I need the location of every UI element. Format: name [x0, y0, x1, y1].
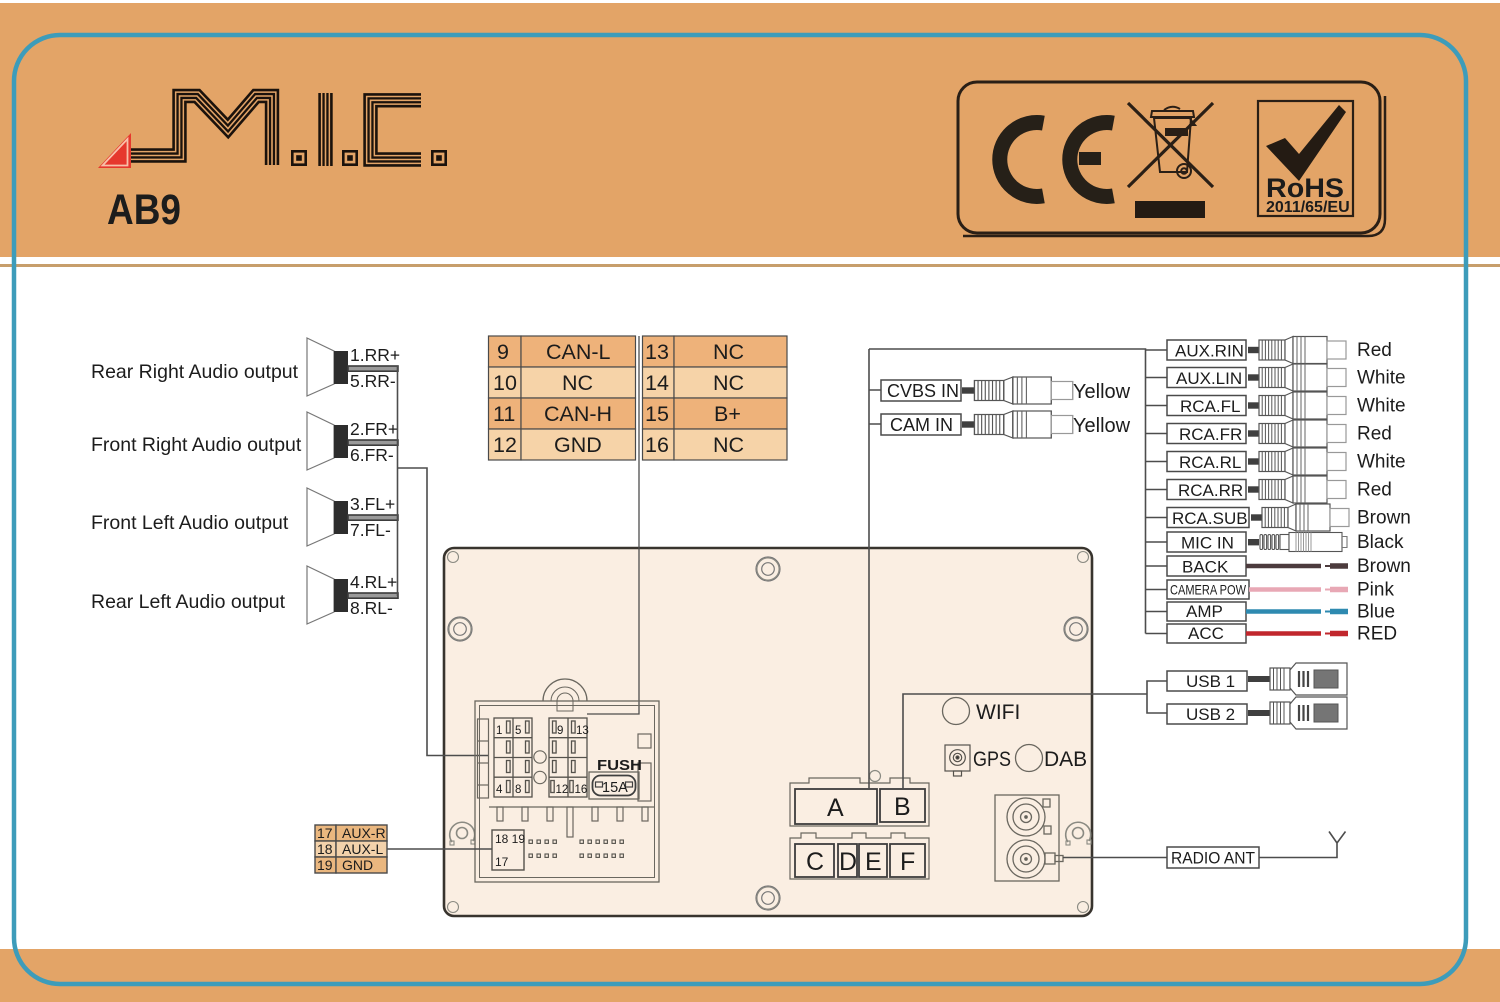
svg-text:8.RL-: 8.RL-: [350, 598, 393, 618]
svg-text:Rear Right Audio output: Rear Right Audio output: [91, 361, 299, 383]
svg-text:Yellow: Yellow: [1073, 381, 1131, 403]
svg-text:B+: B+: [714, 402, 741, 426]
svg-text:1: 1: [496, 725, 502, 737]
svg-text:15A: 15A: [602, 780, 628, 796]
svg-text:CAMERA POW: CAMERA POW: [1170, 582, 1247, 598]
svg-text:10: 10: [493, 371, 517, 395]
svg-text:NC: NC: [713, 340, 744, 364]
svg-text:16: 16: [575, 784, 588, 796]
svg-text:AMP: AMP: [1186, 602, 1223, 621]
svg-text:AB9: AB9: [107, 186, 181, 234]
svg-text:17: 17: [317, 825, 333, 841]
svg-text:Pink: Pink: [1357, 580, 1394, 601]
svg-text:WIFI: WIFI: [976, 701, 1020, 724]
svg-text:Rear Left Audio output: Rear Left Audio output: [91, 591, 286, 613]
svg-text:MIC IN: MIC IN: [1181, 534, 1234, 553]
svg-text:Brown: Brown: [1357, 556, 1411, 577]
svg-text:RCA.FL: RCA.FL: [1180, 397, 1240, 416]
svg-text:RADIO ANT: RADIO ANT: [1171, 849, 1255, 868]
svg-text:Brown: Brown: [1357, 508, 1411, 529]
svg-text:BACK: BACK: [1182, 558, 1229, 577]
svg-text:F: F: [900, 848, 915, 876]
svg-text:AUX.LIN: AUX.LIN: [1176, 369, 1242, 388]
svg-text:Red: Red: [1357, 340, 1392, 361]
svg-text:Yellow: Yellow: [1073, 415, 1131, 437]
svg-text:GND: GND: [342, 857, 373, 873]
svg-text:Front Right Audio output: Front Right Audio output: [91, 434, 302, 456]
svg-text:4: 4: [496, 784, 503, 796]
svg-text:AUX-R: AUX-R: [342, 825, 386, 841]
svg-text:C: C: [806, 848, 824, 876]
svg-text:18 19: 18 19: [495, 832, 525, 846]
svg-text:Red: Red: [1357, 480, 1392, 501]
svg-text:NC: NC: [713, 433, 744, 457]
svg-text:18: 18: [317, 841, 333, 857]
svg-text:5.RR-: 5.RR-: [350, 371, 396, 391]
svg-text:White: White: [1357, 368, 1406, 389]
svg-text:USB 2: USB 2: [1186, 705, 1235, 724]
svg-text:AUX.RIN: AUX.RIN: [1175, 342, 1244, 361]
svg-text:RCA.RL: RCA.RL: [1179, 453, 1241, 472]
svg-text:14: 14: [645, 371, 669, 395]
svg-text:Blue: Blue: [1357, 602, 1395, 623]
svg-text:AUX-L: AUX-L: [342, 841, 383, 857]
svg-text:CVBS IN: CVBS IN: [887, 381, 959, 401]
svg-text:3.FL+: 3.FL+: [350, 494, 395, 514]
svg-text:A: A: [827, 794, 844, 822]
svg-text:CAM IN: CAM IN: [890, 415, 953, 435]
svg-text:6.FR-: 6.FR-: [350, 445, 394, 465]
svg-text:NC: NC: [562, 371, 593, 395]
svg-text:RCA.FR: RCA.FR: [1179, 425, 1242, 444]
svg-text:12: 12: [556, 784, 569, 796]
svg-text:GND: GND: [554, 433, 602, 457]
svg-text:2011/65/EU: 2011/65/EU: [1266, 199, 1350, 216]
svg-text:USB 1: USB 1: [1186, 672, 1235, 691]
svg-text:13: 13: [645, 340, 669, 364]
svg-text:RCA.RR: RCA.RR: [1178, 481, 1243, 500]
svg-text:RCA.SUB: RCA.SUB: [1172, 509, 1248, 528]
svg-text:Front Left Audio output: Front Left Audio output: [91, 512, 289, 534]
svg-text:NC: NC: [713, 371, 744, 395]
svg-text:16: 16: [645, 433, 669, 457]
svg-text:7.FL-: 7.FL-: [350, 520, 391, 540]
svg-text:D: D: [839, 848, 857, 876]
svg-text:GPS: GPS: [973, 748, 1011, 771]
svg-text:White: White: [1357, 396, 1406, 417]
svg-text:1.RR+: 1.RR+: [350, 345, 400, 365]
svg-text:15: 15: [645, 402, 669, 426]
svg-text:CAN-H: CAN-H: [544, 402, 612, 426]
svg-text:4.RL+: 4.RL+: [350, 572, 397, 592]
svg-text:CAN-L: CAN-L: [546, 340, 611, 364]
svg-text:13: 13: [576, 725, 589, 737]
svg-text:19: 19: [317, 857, 333, 873]
svg-text:DAB: DAB: [1044, 748, 1087, 771]
svg-text:RED: RED: [1357, 624, 1397, 645]
svg-text:12: 12: [493, 433, 517, 457]
svg-text:17: 17: [495, 855, 509, 869]
svg-text:11: 11: [493, 402, 515, 426]
svg-text:9: 9: [497, 340, 509, 364]
svg-text:White: White: [1357, 452, 1406, 473]
svg-text:2.FR+: 2.FR+: [350, 419, 398, 439]
svg-text:8: 8: [515, 784, 521, 796]
svg-text:Black: Black: [1357, 532, 1404, 553]
svg-text:5: 5: [515, 725, 521, 737]
svg-text:Red: Red: [1357, 424, 1392, 445]
svg-text:E: E: [865, 848, 882, 876]
svg-text:ACC: ACC: [1188, 624, 1224, 643]
svg-text:9: 9: [557, 725, 563, 737]
svg-text:B: B: [894, 793, 911, 821]
